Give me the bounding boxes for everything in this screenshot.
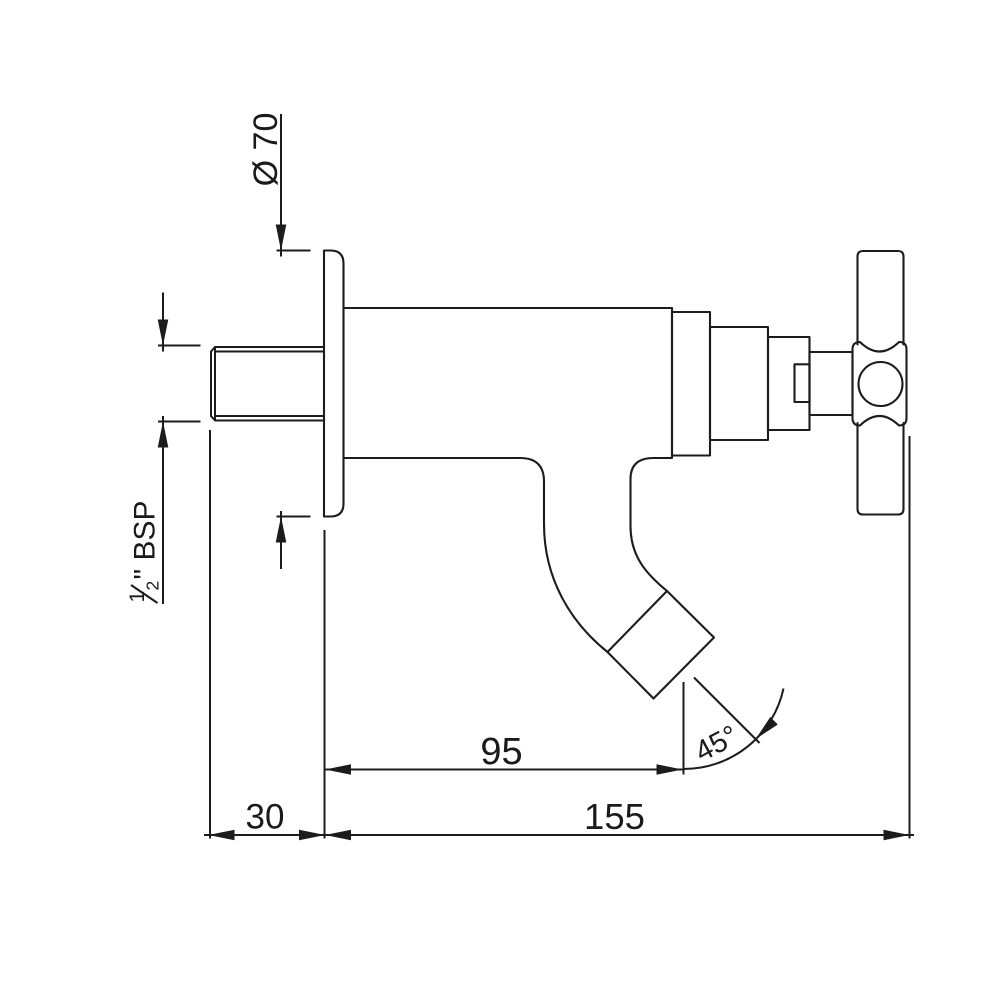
svg-text:1: 1 bbox=[126, 591, 149, 603]
svg-text:30: 30 bbox=[246, 798, 285, 837]
svg-text:2: 2 bbox=[143, 581, 163, 591]
svg-text:Ø 70: Ø 70 bbox=[247, 113, 285, 187]
svg-text:155: 155 bbox=[584, 796, 645, 837]
svg-text:95: 95 bbox=[480, 731, 522, 773]
svg-text:" BSP: " BSP bbox=[129, 500, 162, 579]
